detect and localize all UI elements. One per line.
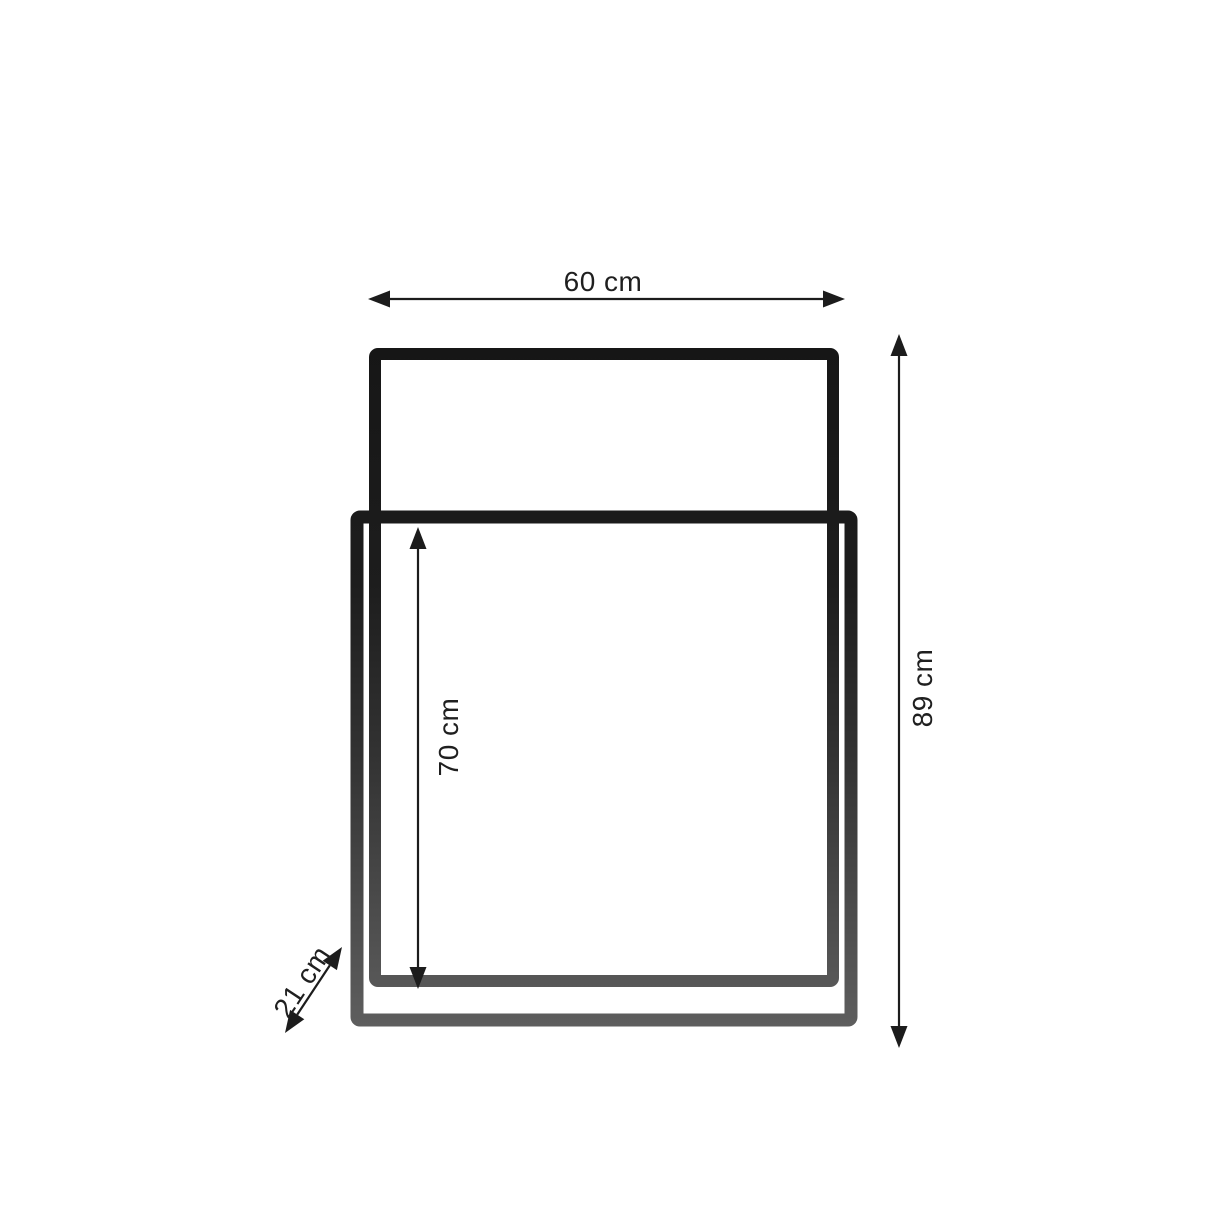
dimension-width-label: 60 cm [564, 266, 643, 297]
dimension-inner-height: 70 cm [410, 527, 465, 989]
dimension-inner-height-label: 70 cm [433, 698, 464, 777]
front-frame [357, 517, 851, 1020]
diagram-svg: 60 cm 89 cm 70 cm 21 cm [0, 0, 1214, 1214]
product-dimension-diagram: 60 cm 89 cm 70 cm 21 cm [0, 0, 1214, 1214]
arrowhead-up-icon [891, 334, 908, 356]
dimension-total-height: 89 cm [891, 334, 939, 1048]
back-frame [375, 354, 833, 981]
arrowhead-down-icon [891, 1026, 908, 1048]
towel-rack-frame [357, 354, 851, 1020]
dimension-width: 60 cm [368, 266, 845, 308]
dimension-depth-label: 21 cm [267, 940, 336, 1023]
arrowhead-left-icon [368, 291, 390, 308]
arrowhead-up-icon [410, 527, 427, 549]
dimension-depth: 21 cm [267, 940, 342, 1033]
arrowhead-right-icon [823, 291, 845, 308]
dimension-total-height-label: 89 cm [907, 649, 938, 728]
